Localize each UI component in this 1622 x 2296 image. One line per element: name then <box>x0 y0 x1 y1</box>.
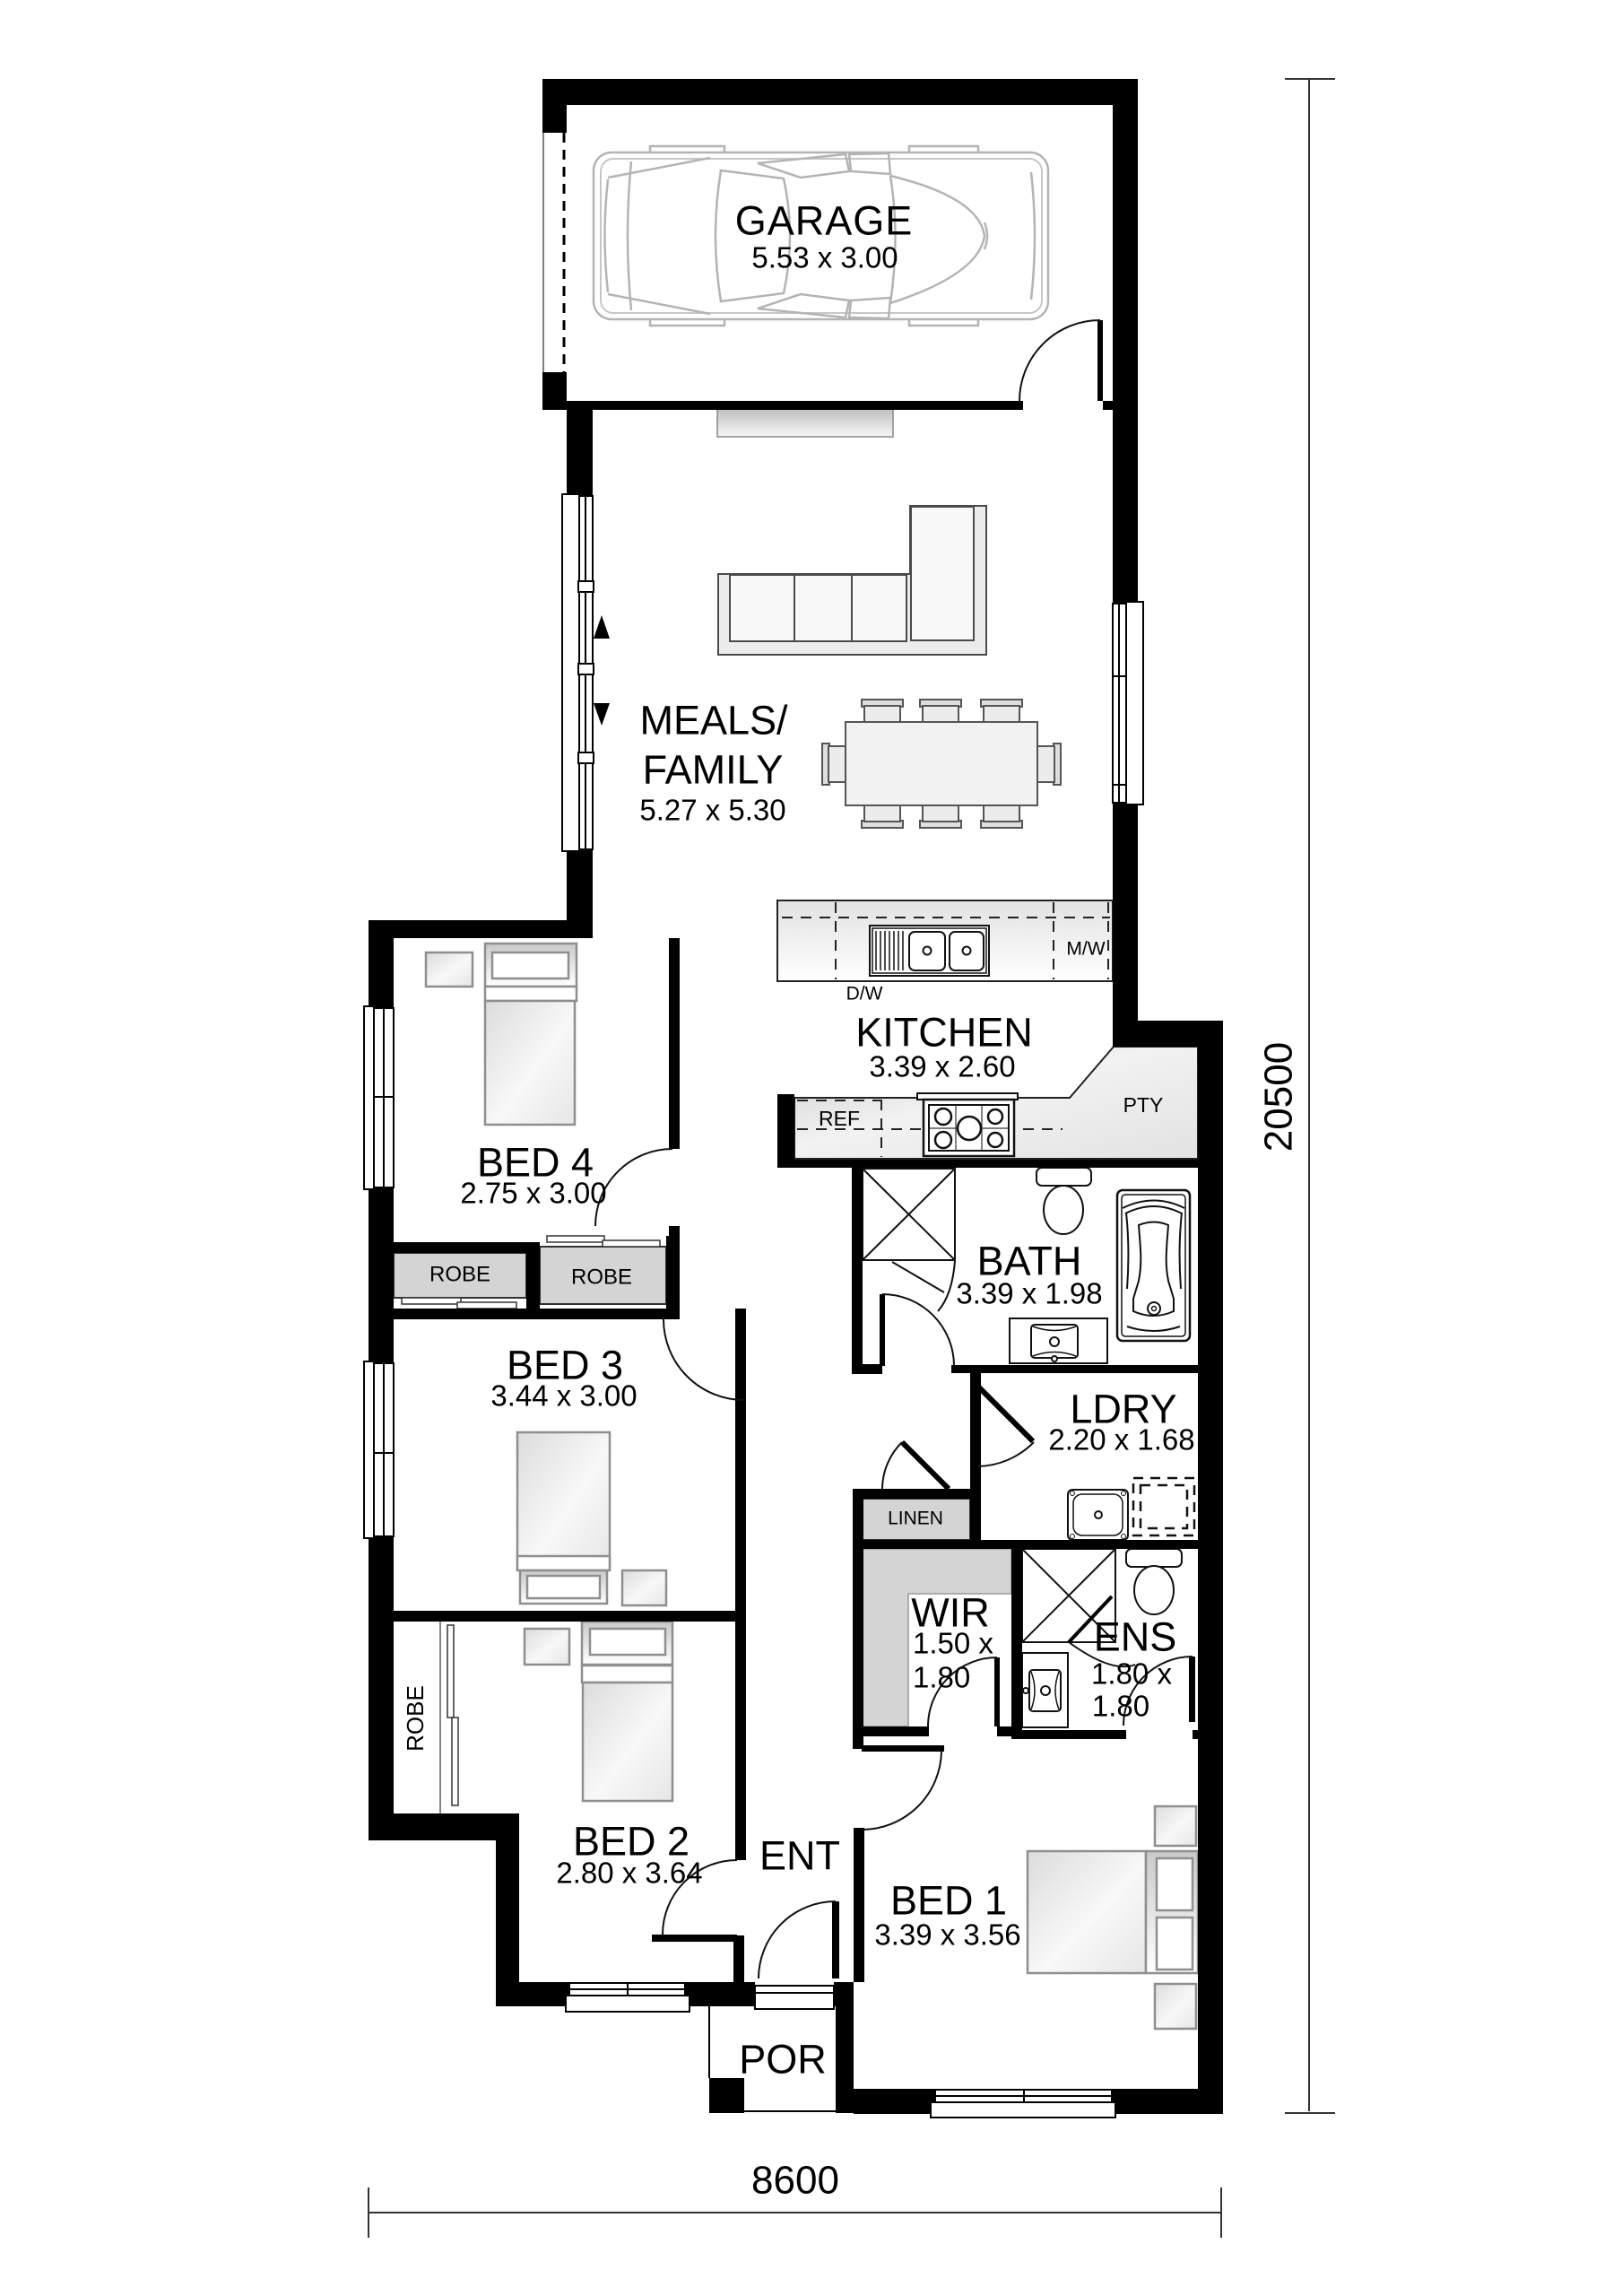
svg-text:MEALS/: MEALS/ <box>639 698 788 744</box>
svg-text:2.80 x 3.64: 2.80 x 3.64 <box>556 1857 702 1890</box>
svg-text:2.75 x 3.00: 2.75 x 3.00 <box>460 1177 606 1210</box>
svg-text:2.20 x 1.68: 2.20 x 1.68 <box>1048 1423 1194 1457</box>
svg-text:20500: 20500 <box>1257 1042 1301 1152</box>
svg-text:ROBE: ROBE <box>571 1265 632 1290</box>
svg-text:8600: 8600 <box>751 2159 839 2203</box>
svg-text:5.27 x 5.30: 5.27 x 5.30 <box>639 794 785 827</box>
svg-text:ENS: ENS <box>1094 1614 1177 1660</box>
svg-text:3.39 x 1.98: 3.39 x 1.98 <box>956 1277 1102 1310</box>
svg-text:POR: POR <box>739 2037 827 2083</box>
svg-text:PTY: PTY <box>1123 1093 1164 1117</box>
svg-text:GARAGE: GARAGE <box>735 198 914 244</box>
svg-text:REF: REF <box>819 1107 860 1130</box>
svg-text:ROBE: ROBE <box>429 1263 490 1287</box>
svg-text:1.80 x: 1.80 x <box>1091 1657 1172 1691</box>
svg-text:ENT: ENT <box>759 1833 840 1879</box>
svg-text:LINEN: LINEN <box>888 1509 943 1529</box>
svg-text:BED 1: BED 1 <box>890 1878 1007 1924</box>
svg-text:3.44 x 3.00: 3.44 x 3.00 <box>490 1379 637 1413</box>
svg-text:ROBE: ROBE <box>402 1685 429 1752</box>
svg-text:1.80: 1.80 <box>913 1661 970 1694</box>
svg-text:5.53 x 3.00: 5.53 x 3.00 <box>751 241 898 274</box>
svg-text:KITCHEN: KITCHEN <box>855 1010 1033 1056</box>
svg-text:1.80: 1.80 <box>1092 1690 1149 1723</box>
svg-text:3.39 x 2.60: 3.39 x 2.60 <box>869 1050 1015 1083</box>
svg-text:FAMILY: FAMILY <box>643 747 784 793</box>
svg-text:1.50 x: 1.50 x <box>913 1627 993 1660</box>
svg-text:M/W: M/W <box>1066 939 1105 960</box>
svg-text:3.39 x 3.56: 3.39 x 3.56 <box>874 1918 1020 1952</box>
svg-text:D/W: D/W <box>846 984 883 1004</box>
